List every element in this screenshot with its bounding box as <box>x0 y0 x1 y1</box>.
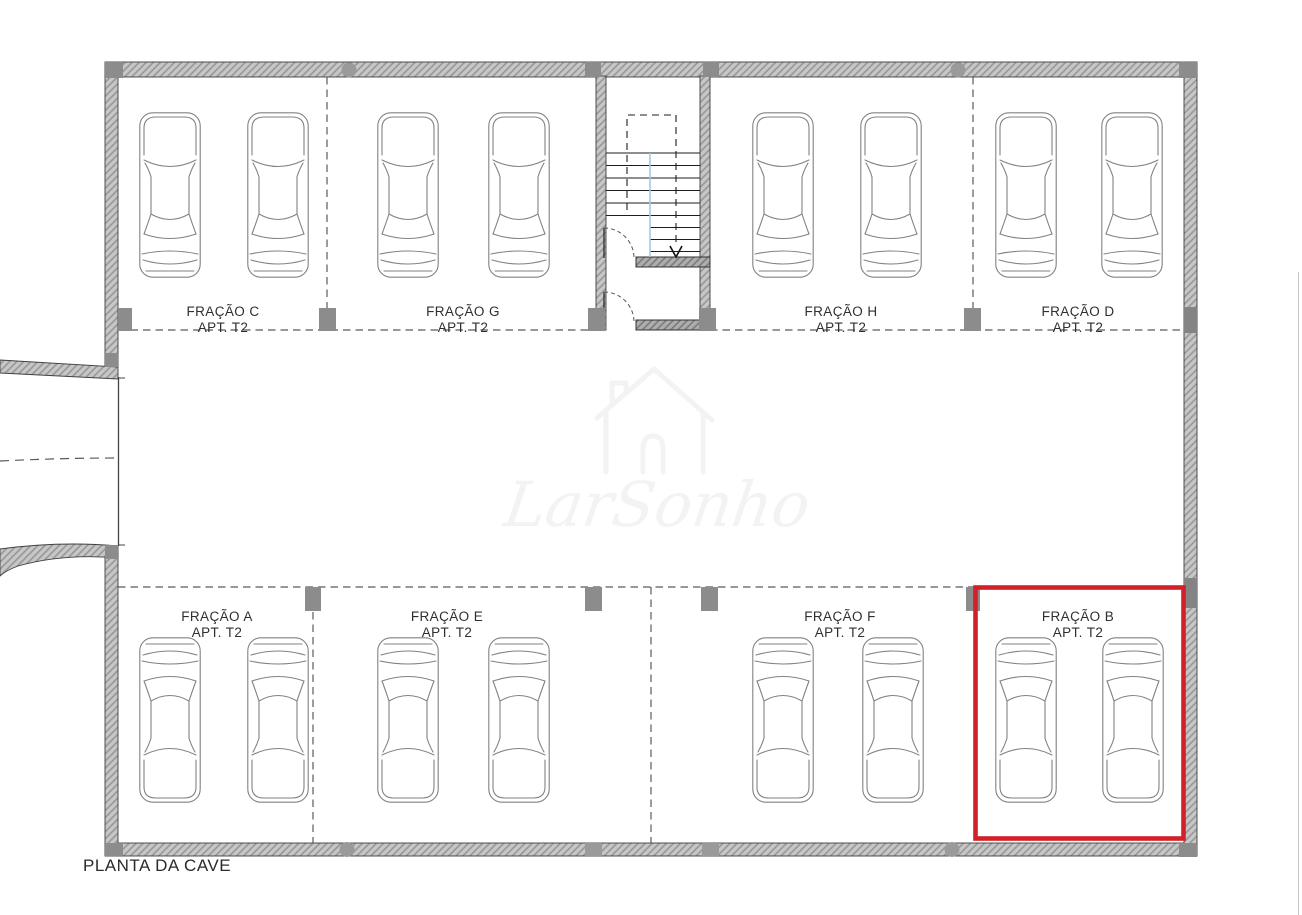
section-label-f: FRAÇÃO F APT. T2 <box>745 592 935 658</box>
entrance-ramp <box>0 360 125 576</box>
driveway-centerline <box>0 458 118 461</box>
car-icon <box>996 638 1056 802</box>
section-label-h: FRAÇÃO H APT. T2 <box>746 287 936 353</box>
section-name: FRAÇÃO F <box>804 609 875 624</box>
section-apt: APT. T2 <box>352 625 542 642</box>
section-label-e: FRAÇÃO E APT. T2 <box>352 592 542 658</box>
section-apt: APT. T2 <box>128 320 318 337</box>
section-name: FRAÇÃO G <box>426 304 500 319</box>
car-icon <box>378 638 438 802</box>
car-icon <box>753 113 813 277</box>
house-watermark-icon <box>597 369 712 472</box>
car-icon <box>489 113 549 277</box>
floorplan-canvas: LarSonho FRAÇÃO C APT. T2 FRAÇÃO G APT. … <box>0 0 1302 915</box>
car-icon <box>378 113 438 277</box>
car-icon <box>140 638 200 802</box>
car-icon <box>1102 113 1162 277</box>
plan-title: PLANTA DA CAVE <box>83 856 231 876</box>
section-name: FRAÇÃO C <box>187 304 260 319</box>
staircase <box>596 76 710 330</box>
section-label-g: FRAÇÃO G APT. T2 <box>368 287 558 353</box>
car-icon <box>248 638 308 802</box>
section-label-c: FRAÇÃO C APT. T2 <box>128 287 318 353</box>
car-icon <box>861 113 921 277</box>
floorplan-drawing <box>0 0 1302 915</box>
section-label-b: FRAÇÃO B APT. T2 <box>983 592 1173 658</box>
car-icon <box>140 113 200 277</box>
section-name: FRAÇÃO E <box>411 609 483 624</box>
section-name: FRAÇÃO D <box>1042 304 1115 319</box>
section-apt: APT. T2 <box>745 625 935 642</box>
door-swing-upper <box>604 228 634 258</box>
car-icon <box>1103 638 1163 802</box>
car-icon <box>863 638 923 802</box>
door-swing-lower <box>604 292 634 322</box>
section-apt: APT. T2 <box>122 625 312 642</box>
section-name: FRAÇÃO A <box>181 609 252 624</box>
car-icon <box>996 113 1056 277</box>
car-icon <box>248 113 308 277</box>
section-label-d: FRAÇÃO D APT. T2 <box>983 287 1173 353</box>
car-icon <box>489 638 549 802</box>
section-name: FRAÇÃO B <box>1042 609 1114 624</box>
car-icon <box>753 638 813 802</box>
stair-treads <box>606 153 700 252</box>
section-apt: APT. T2 <box>983 320 1173 337</box>
section-label-a: FRAÇÃO A APT. T2 <box>122 592 312 658</box>
section-apt: APT. T2 <box>746 320 936 337</box>
section-name: FRAÇÃO H <box>805 304 878 319</box>
section-apt: APT. T2 <box>983 625 1173 642</box>
stair-upper-flight-outline <box>627 115 676 245</box>
section-apt: APT. T2 <box>368 320 558 337</box>
cars-top-row <box>140 113 1162 277</box>
